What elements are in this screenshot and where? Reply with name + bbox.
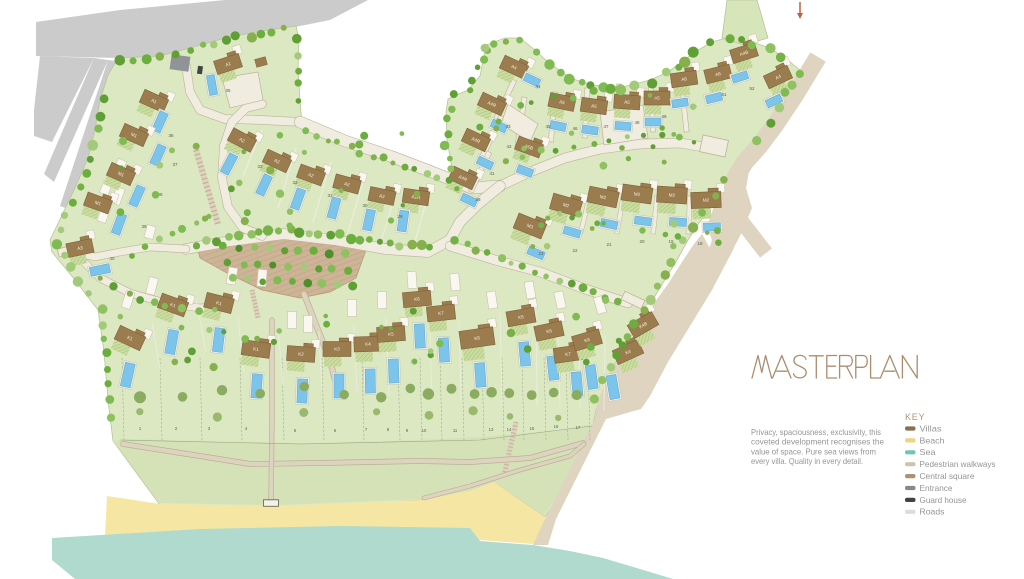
- svg-text:K6: K6: [414, 296, 420, 302]
- svg-text:Beach: Beach: [920, 435, 945, 445]
- svg-text:13: 13: [489, 427, 494, 432]
- svg-text:Central square: Central square: [920, 471, 975, 481]
- svg-text:46: 46: [572, 126, 578, 131]
- svg-text:Roads: Roads: [920, 507, 945, 517]
- svg-text:37: 37: [172, 162, 178, 167]
- svg-text:K3: K3: [334, 347, 340, 352]
- svg-text:A5: A5: [624, 100, 630, 105]
- svg-text:52: 52: [749, 86, 755, 91]
- svg-text:22: 22: [572, 248, 578, 253]
- svg-text:31: 31: [327, 193, 333, 198]
- svg-text:43: 43: [505, 124, 511, 129]
- svg-text:47: 47: [603, 124, 609, 129]
- svg-text:44: 44: [535, 84, 541, 89]
- svg-text:33: 33: [257, 164, 263, 169]
- svg-text:48: 48: [634, 120, 640, 125]
- svg-text:49: 49: [661, 114, 667, 119]
- svg-text:K2: K2: [298, 352, 304, 357]
- svg-text:Privacy, spaciousness, exclusi: Privacy, spaciousness, exclusivity, this: [751, 427, 881, 437]
- svg-text:coveted development recognises: coveted development recognises the: [751, 437, 884, 447]
- svg-text:K7: K7: [438, 310, 445, 316]
- svg-text:K4: K4: [365, 342, 371, 347]
- svg-text:28: 28: [475, 197, 481, 202]
- svg-text:Villas: Villas: [920, 423, 942, 433]
- svg-text:42: 42: [506, 144, 512, 149]
- svg-text:M2: M2: [703, 198, 710, 203]
- svg-text:39: 39: [141, 224, 147, 229]
- svg-text:51: 51: [721, 92, 727, 97]
- svg-text:17: 17: [576, 425, 581, 430]
- svg-text:15: 15: [530, 426, 535, 431]
- svg-text:M2: M2: [633, 191, 640, 197]
- svg-text:value of space. Pure sea views: value of space. Pure sea views from: [751, 446, 876, 456]
- svg-text:Pedestrian walkways: Pedestrian walkways: [920, 459, 996, 469]
- svg-text:14: 14: [507, 427, 512, 432]
- svg-text:M2: M2: [669, 192, 676, 197]
- svg-text:23: 23: [538, 251, 544, 256]
- svg-text:every villa. Quality in every: every villa. Quality in every detail.: [751, 456, 863, 466]
- svg-text:18: 18: [697, 241, 703, 246]
- svg-text:29: 29: [397, 214, 403, 219]
- svg-text:36: 36: [168, 133, 174, 138]
- svg-text:11: 11: [453, 428, 458, 433]
- svg-text:35: 35: [225, 88, 231, 93]
- svg-text:10: 10: [422, 428, 427, 433]
- svg-text:A5: A5: [654, 96, 660, 101]
- svg-text:20: 20: [639, 239, 645, 244]
- svg-text:K5: K5: [388, 331, 394, 336]
- svg-text:KEY: KEY: [905, 412, 925, 422]
- svg-text:21: 21: [606, 242, 612, 247]
- svg-text:16: 16: [554, 424, 559, 429]
- svg-text:32: 32: [292, 180, 298, 185]
- svg-text:Guard house: Guard house: [920, 495, 967, 505]
- svg-text:30: 30: [362, 203, 368, 208]
- svg-text:41: 41: [489, 171, 495, 176]
- svg-text:Sea: Sea: [920, 447, 936, 457]
- svg-text:45: 45: [545, 124, 551, 129]
- svg-text:Entrance: Entrance: [920, 483, 953, 493]
- svg-text:40: 40: [109, 256, 115, 261]
